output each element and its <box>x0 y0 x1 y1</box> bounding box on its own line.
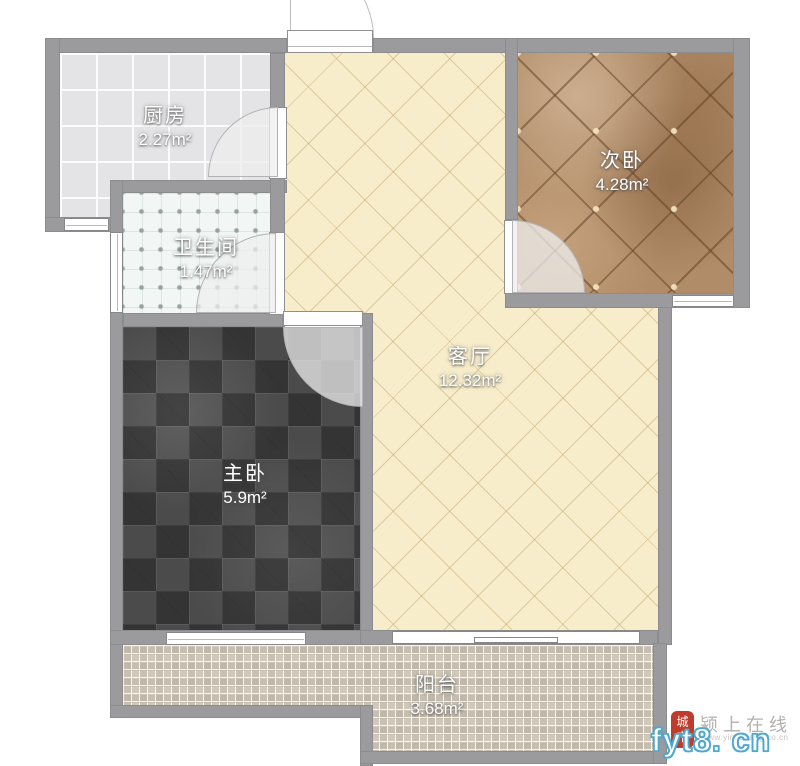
bedroom2-label: 次卧 4.28m² <box>596 144 649 195</box>
floorplan-canvas: 厨房 2.27m² 卫生间 1.47m² 次卧 4.28m² 客厅 12.32m… <box>0 0 800 766</box>
bathroom-area: 1.47m² <box>173 262 239 282</box>
bedroom2-area: 4.28m² <box>596 175 649 195</box>
living-balcony-sliding-door <box>392 631 640 644</box>
master-bedroom-name: 主卧 <box>223 457 267 486</box>
bedroom2-window <box>672 295 734 307</box>
bathroom-label: 卫生间 1.47m² <box>173 231 239 282</box>
master-bedroom-area: 5.9m² <box>223 488 267 508</box>
kitchen-label: 厨房 2.27m² <box>139 99 192 150</box>
living-room-label: 客厅 12.32m² <box>439 340 501 391</box>
watermark-domain: fyt8. cn <box>651 722 771 759</box>
wall-segment <box>45 38 60 232</box>
wall-segment <box>270 177 285 234</box>
bedroom2-name: 次卧 <box>596 144 649 173</box>
wall-segment <box>505 38 518 220</box>
kitchen-area: 2.27m² <box>139 130 192 150</box>
sliding-door-panel <box>474 637 558 643</box>
balcony-floor <box>123 645 653 751</box>
living-room-area: 12.32m² <box>439 371 501 391</box>
wall-segment <box>123 313 283 327</box>
wall-segment <box>658 293 672 645</box>
kitchen-window <box>64 218 109 231</box>
wall-segment <box>733 38 750 308</box>
balcony-area: 3.68m² <box>411 699 464 719</box>
wall-segment <box>110 180 287 193</box>
wall-segment <box>110 705 373 718</box>
master-bedroom-label: 主卧 5.9m² <box>223 457 267 508</box>
bathroom-name: 卫生间 <box>173 231 239 260</box>
kitchen-name: 厨房 <box>139 99 192 128</box>
master-bedroom-door <box>283 311 363 326</box>
wall-segment <box>270 53 285 109</box>
wall-segment <box>360 751 667 764</box>
entry-door <box>287 30 373 53</box>
master-bedroom-window <box>166 632 306 645</box>
bathroom-window <box>110 232 123 313</box>
living-room-name: 客厅 <box>439 340 501 369</box>
wall-segment <box>45 38 287 53</box>
wall-segment <box>373 38 750 53</box>
balcony-name: 阳台 <box>411 668 464 697</box>
balcony-label: 阳台 3.68m² <box>411 668 464 719</box>
